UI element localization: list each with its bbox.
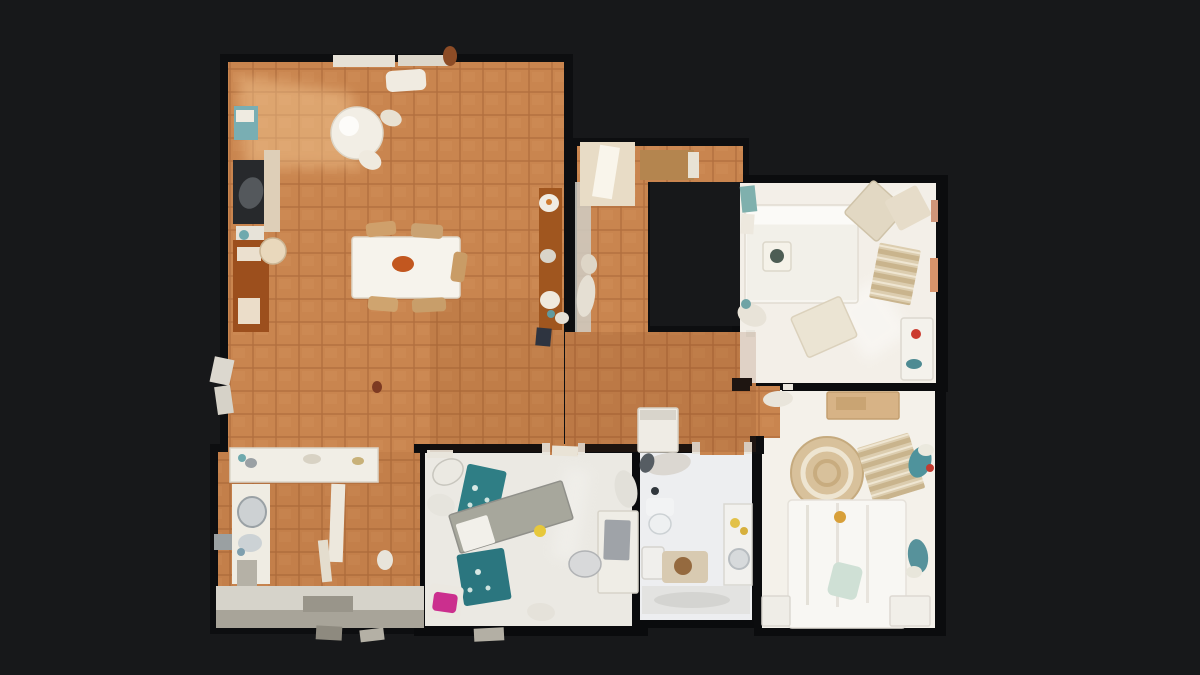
- kitchen-blob-white: [377, 550, 393, 570]
- armchair-round: [331, 107, 383, 159]
- bed-tr-headboard-teal: [740, 185, 758, 212]
- bench-top-wall: [385, 69, 426, 93]
- pouf-round: [260, 238, 286, 264]
- bed-br-clutter-white-a: [918, 444, 934, 456]
- void-cutout: [650, 182, 743, 326]
- bed-tr-desk-teal-item: [906, 359, 922, 369]
- armchair-cushion: [339, 116, 359, 136]
- bed-br-clutter-white-b: [906, 566, 922, 578]
- bath-dark-item: [651, 487, 659, 495]
- office-door-leaf: [552, 446, 578, 457]
- below-office-debris: [474, 627, 505, 642]
- bed-tr-headboard-white: [740, 214, 754, 235]
- office-rug-bottom-dot-a: [475, 569, 481, 575]
- office-rug-bottom: [456, 548, 512, 607]
- bath-item-yellow-b: [740, 527, 748, 535]
- bath-item-yellow-a: [730, 518, 740, 528]
- kitchen-outside-tap: [214, 534, 232, 550]
- kitchen-sink: [238, 497, 266, 527]
- windowsill-right: [398, 55, 450, 66]
- office-rug-top-dot-b: [485, 498, 490, 503]
- below-kitchen-debris-a: [316, 625, 343, 640]
- corridor-cabinet-top: [640, 410, 676, 420]
- kitchen-counter-bottom-gray: [216, 610, 424, 628]
- hall-shelf-item: [688, 152, 699, 178]
- windowsill-left: [333, 55, 395, 67]
- bed-br-gold-item: [834, 511, 846, 523]
- bath-vanity: [724, 504, 752, 585]
- bath-toilet-bowl: [649, 514, 671, 534]
- office-rug-bottom-dot-c: [468, 588, 473, 593]
- floorplan-stage: [0, 0, 1200, 675]
- kitchen-counter-item-c: [352, 457, 364, 465]
- radiator-strip: [264, 150, 280, 232]
- sideboard-item-c: [540, 291, 560, 309]
- dining-centerpiece: [392, 256, 414, 272]
- kitchen-counter-item-b: [303, 454, 321, 464]
- shelf-unit-white: [236, 110, 254, 122]
- office-rug-top-dot-c: [468, 503, 473, 508]
- kitchen-towel: [329, 484, 346, 562]
- bed-br-nightstand-left: [762, 596, 790, 626]
- windowsill-plant: [443, 46, 457, 66]
- bed-tr-desk-red-item: [911, 329, 921, 339]
- sideboard-item-dark: [535, 327, 552, 346]
- bath-cabinet: [642, 547, 664, 579]
- kitchen-stove: [303, 596, 353, 612]
- bed-tr-clutter-teal: [741, 299, 751, 309]
- bed-br-duvet-fold-a: [806, 505, 809, 605]
- wall-bedrooms-divider: [782, 383, 936, 391]
- floorplan-canvas: [0, 0, 1200, 675]
- bed-tr-desk: [901, 318, 933, 380]
- bed-br-duvet-fold-c: [866, 505, 869, 603]
- console-items-a: [237, 247, 261, 261]
- bath-sink: [729, 549, 749, 569]
- wall-unit-teal-dot: [239, 230, 249, 240]
- bed-br-nightstand-right: [890, 596, 930, 626]
- bed-tr-tray-plate: [770, 249, 784, 263]
- office-monitor: [603, 520, 630, 561]
- office-chair-pink-seat: [432, 591, 458, 613]
- hall-shelf-wood: [640, 150, 694, 180]
- dining-chair-4: [412, 297, 447, 313]
- office-rug-top-dot-a: [472, 485, 478, 491]
- kitchen-clutter-blue: [237, 548, 245, 556]
- bed-tr-wall-accent-b: [931, 200, 938, 222]
- kitchen-counter-teal: [238, 454, 246, 462]
- sideboard-dot-teal: [547, 310, 555, 318]
- bed-br-clutter-red: [926, 464, 934, 472]
- wall-cap-beds-divider: [783, 384, 793, 390]
- sideboard-item-b: [540, 249, 556, 263]
- dining-chair-2: [411, 223, 444, 239]
- office-rug-bottom-dot-b: [486, 586, 491, 591]
- floor-item-red: [372, 381, 382, 393]
- bath-mat-motif: [674, 557, 692, 575]
- bed-tr-wall-accent-a: [930, 258, 938, 292]
- kitchen-counter-item-a: [245, 458, 257, 468]
- bed-tr-pillows: [747, 207, 855, 224]
- corridor-item-white: [555, 312, 569, 324]
- bath-shower-streak: [654, 592, 730, 608]
- sideboard-dot-orange: [546, 199, 552, 205]
- office-chair-right: [569, 551, 601, 577]
- console-items-b: [238, 298, 260, 324]
- office-flower: [534, 525, 546, 537]
- bed-br-dresser-top: [836, 397, 866, 410]
- dining-chair-3: [367, 296, 398, 313]
